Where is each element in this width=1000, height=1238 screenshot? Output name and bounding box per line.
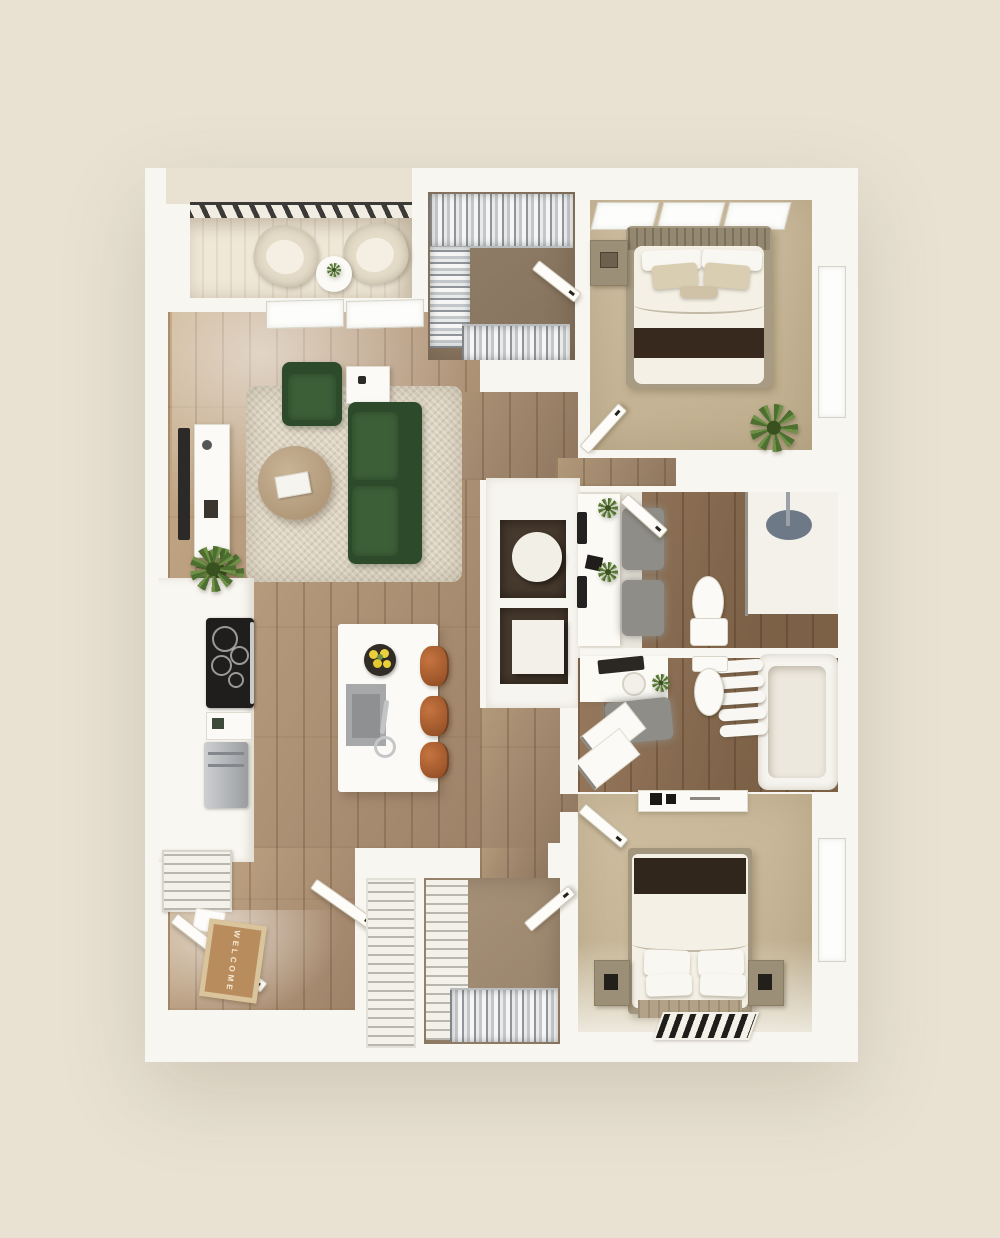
coffee-maker-screen <box>212 718 224 729</box>
nightstand-drawer <box>758 974 772 990</box>
shower-glass-panel <box>745 492 748 616</box>
wall <box>560 708 578 794</box>
refrigerator-handle <box>208 752 244 755</box>
side-table-decor <box>358 376 366 384</box>
cooktop <box>206 618 254 708</box>
wall-tv <box>178 428 190 540</box>
bedroom1-plant <box>750 404 798 452</box>
bed1-dark-throw <box>634 328 764 358</box>
table-plant <box>327 263 341 277</box>
dresser-decor <box>650 793 662 805</box>
faucet-hose <box>374 736 396 758</box>
lemon-bowl <box>364 644 396 676</box>
welcome-mat-text: WELCOME <box>224 929 242 992</box>
bathtub-basin <box>768 666 826 778</box>
tv-console <box>194 424 230 558</box>
vanity-wall-faucet <box>577 576 587 608</box>
sofa-cushion <box>352 412 398 480</box>
dresser-decor <box>690 797 720 800</box>
armchair-cushion <box>288 374 336 420</box>
balcony-open-edge <box>166 168 412 204</box>
nightstand-tray <box>600 252 618 268</box>
bathroom1-rug <box>622 580 664 636</box>
shower-head <box>786 492 790 526</box>
niche-round-table <box>512 532 562 582</box>
refrigerator-handle <box>208 764 244 767</box>
wire-cart <box>162 850 232 912</box>
sofa-cushion <box>352 486 398 556</box>
floor-plan-render: { "palette":{ "background":"#e9e2d3","wa… <box>0 0 1000 1238</box>
toilet2-bowl <box>694 668 724 716</box>
clothes-rack-top <box>430 194 573 248</box>
console-decor <box>204 500 218 518</box>
bathroom2-sink <box>622 672 646 696</box>
oven-handle <box>250 622 254 704</box>
closet-bottom-hanging-clothes <box>450 988 558 1042</box>
welcome-mat: WELCOME <box>199 918 267 1003</box>
bathroom2-plant <box>652 674 670 692</box>
bed2-dark-throw <box>634 858 746 894</box>
bedroom1-window-right <box>818 266 846 418</box>
bar-stool <box>420 742 449 778</box>
vanity-plant <box>598 498 618 518</box>
vanity-plant <box>598 562 618 582</box>
balcony-door-pane <box>346 299 424 329</box>
niche-cube-cabinet <box>512 620 564 674</box>
linen-closet-shelves <box>366 878 416 1048</box>
bedroom2-patterned-rug <box>653 1012 759 1040</box>
island-sink-basin <box>352 694 380 738</box>
clothes-rack-bottom <box>462 324 570 360</box>
vanity-wall-faucet <box>577 512 587 544</box>
kitchen-counter-plant <box>190 546 236 592</box>
bar-stool <box>420 696 449 736</box>
closet-entry-floor <box>480 848 548 880</box>
wall <box>548 843 578 880</box>
bed2-pillow <box>646 973 693 997</box>
bed1-duvet-fold <box>634 296 764 314</box>
toilet1-tank <box>690 618 728 646</box>
bedroom2-window-right <box>818 838 846 962</box>
towel-shelf <box>715 658 769 753</box>
dresser-decor <box>666 794 676 804</box>
side-table <box>346 366 390 404</box>
nightstand-drawer <box>604 974 618 990</box>
balcony-door-pane <box>266 299 344 329</box>
bar-stool <box>420 646 449 686</box>
console-decor <box>202 440 212 450</box>
bed2-pillow <box>700 973 747 997</box>
